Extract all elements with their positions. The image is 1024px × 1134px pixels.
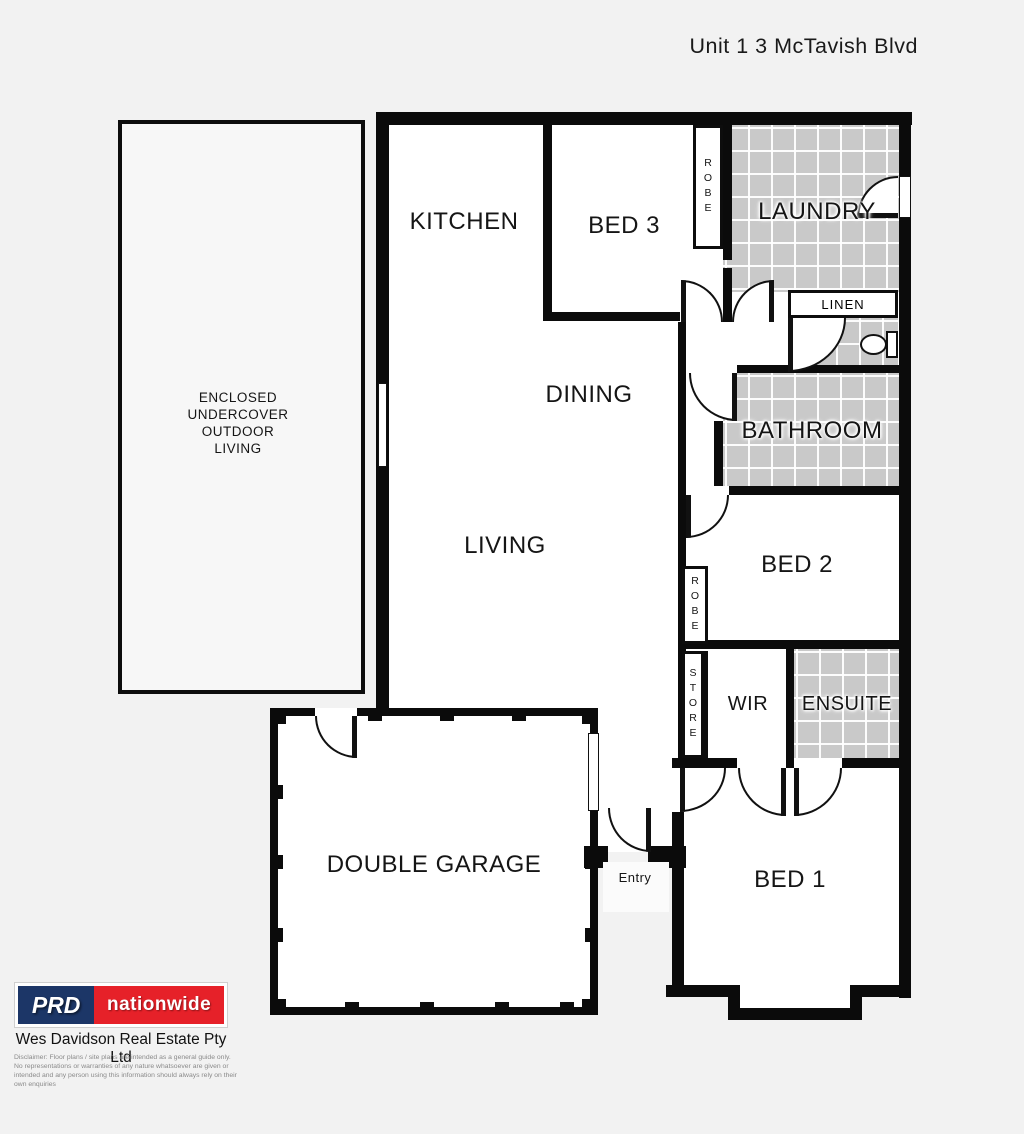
- wall-pier: [270, 785, 283, 799]
- window: [378, 383, 387, 467]
- wall-pier: [582, 708, 598, 724]
- wall: [786, 758, 794, 768]
- wall-pier: [420, 1002, 434, 1015]
- room-label-bed3: BED 3: [560, 210, 688, 242]
- room-label-entry: Entry: [600, 866, 670, 888]
- wall: [714, 421, 723, 486]
- prd-nationwide-logo: PRD nationwide: [14, 982, 228, 1028]
- linen-closet: LINEN: [788, 290, 898, 318]
- disclaimer-text: Disclaimer: Floor plans / site plans are…: [14, 1053, 240, 1089]
- nationwide-logo-text: nationwide: [94, 986, 224, 1024]
- room-label-bathroom: BATHROOM: [728, 415, 896, 447]
- wall-pier: [270, 708, 286, 724]
- wall: [543, 125, 552, 321]
- wall: [729, 486, 911, 495]
- wall: [786, 649, 794, 758]
- room-label-outdoor-living: ENCLOSED UNDERCOVER OUTDOOR LIVING: [128, 368, 348, 478]
- wall: [672, 758, 737, 768]
- wall: [376, 112, 912, 125]
- room-label-bed1: BED 1: [724, 864, 856, 896]
- wall: [678, 640, 911, 649]
- wall-pier: [270, 855, 283, 869]
- prd-logo-text: PRD: [18, 986, 94, 1024]
- wall-pier: [270, 928, 283, 942]
- wall-pier: [560, 1002, 574, 1015]
- wall: [737, 365, 911, 373]
- toilet-cistern-icon: [886, 331, 898, 358]
- room-label-dining: DINING: [519, 379, 659, 411]
- store-closet: STORE: [682, 651, 708, 758]
- wall-pier: [345, 1002, 359, 1015]
- wall-pier: [585, 855, 598, 869]
- closet-label-robe-bed3: ROBE: [702, 157, 714, 217]
- door-frame: [899, 176, 911, 218]
- window: [588, 733, 599, 811]
- wall: [842, 758, 911, 768]
- room-label-ensuite: ENSUITE: [796, 689, 898, 719]
- page-title: Unit 1 3 McTavish Blvd: [640, 34, 918, 64]
- wall: [723, 268, 732, 322]
- room-label-laundry: LAUNDRY: [742, 196, 892, 228]
- wall-pier: [270, 999, 286, 1015]
- room-label-wir: WIR: [712, 689, 784, 719]
- closet-label-store: STORE: [687, 667, 699, 742]
- floor-bed1-bay: [740, 985, 850, 1008]
- wall: [899, 112, 911, 176]
- wall: [899, 218, 911, 998]
- wall: [270, 1007, 598, 1015]
- wall-pier: [440, 708, 454, 721]
- closet-label-linen: LINEN: [821, 297, 864, 312]
- wall: [728, 1008, 862, 1020]
- floor-plan-page: Unit 1 3 McTavish Blvd ENCLOSED UNDERCOV…: [0, 0, 1024, 1134]
- wall-pier: [512, 708, 526, 721]
- wall-pier: [582, 999, 598, 1015]
- wall: [357, 708, 598, 716]
- toilet-icon: [860, 334, 887, 355]
- robe-closet-bed3: ROBE: [693, 125, 723, 249]
- wall: [723, 125, 732, 260]
- wall: [672, 812, 684, 997]
- wall-pier: [368, 708, 382, 721]
- wall: [543, 312, 680, 321]
- wall-pier: [585, 928, 598, 942]
- robe-closet-bed2: ROBE: [682, 566, 708, 644]
- wall-pier: [495, 1002, 509, 1015]
- room-label-garage: DOUBLE GARAGE: [300, 848, 568, 882]
- room-label-kitchen: KITCHEN: [394, 206, 534, 238]
- wall: [850, 985, 862, 1020]
- closet-label-robe-bed2: ROBE: [689, 575, 701, 635]
- room-label-living: LIVING: [435, 530, 575, 562]
- room-label-bed2: BED 2: [732, 549, 862, 581]
